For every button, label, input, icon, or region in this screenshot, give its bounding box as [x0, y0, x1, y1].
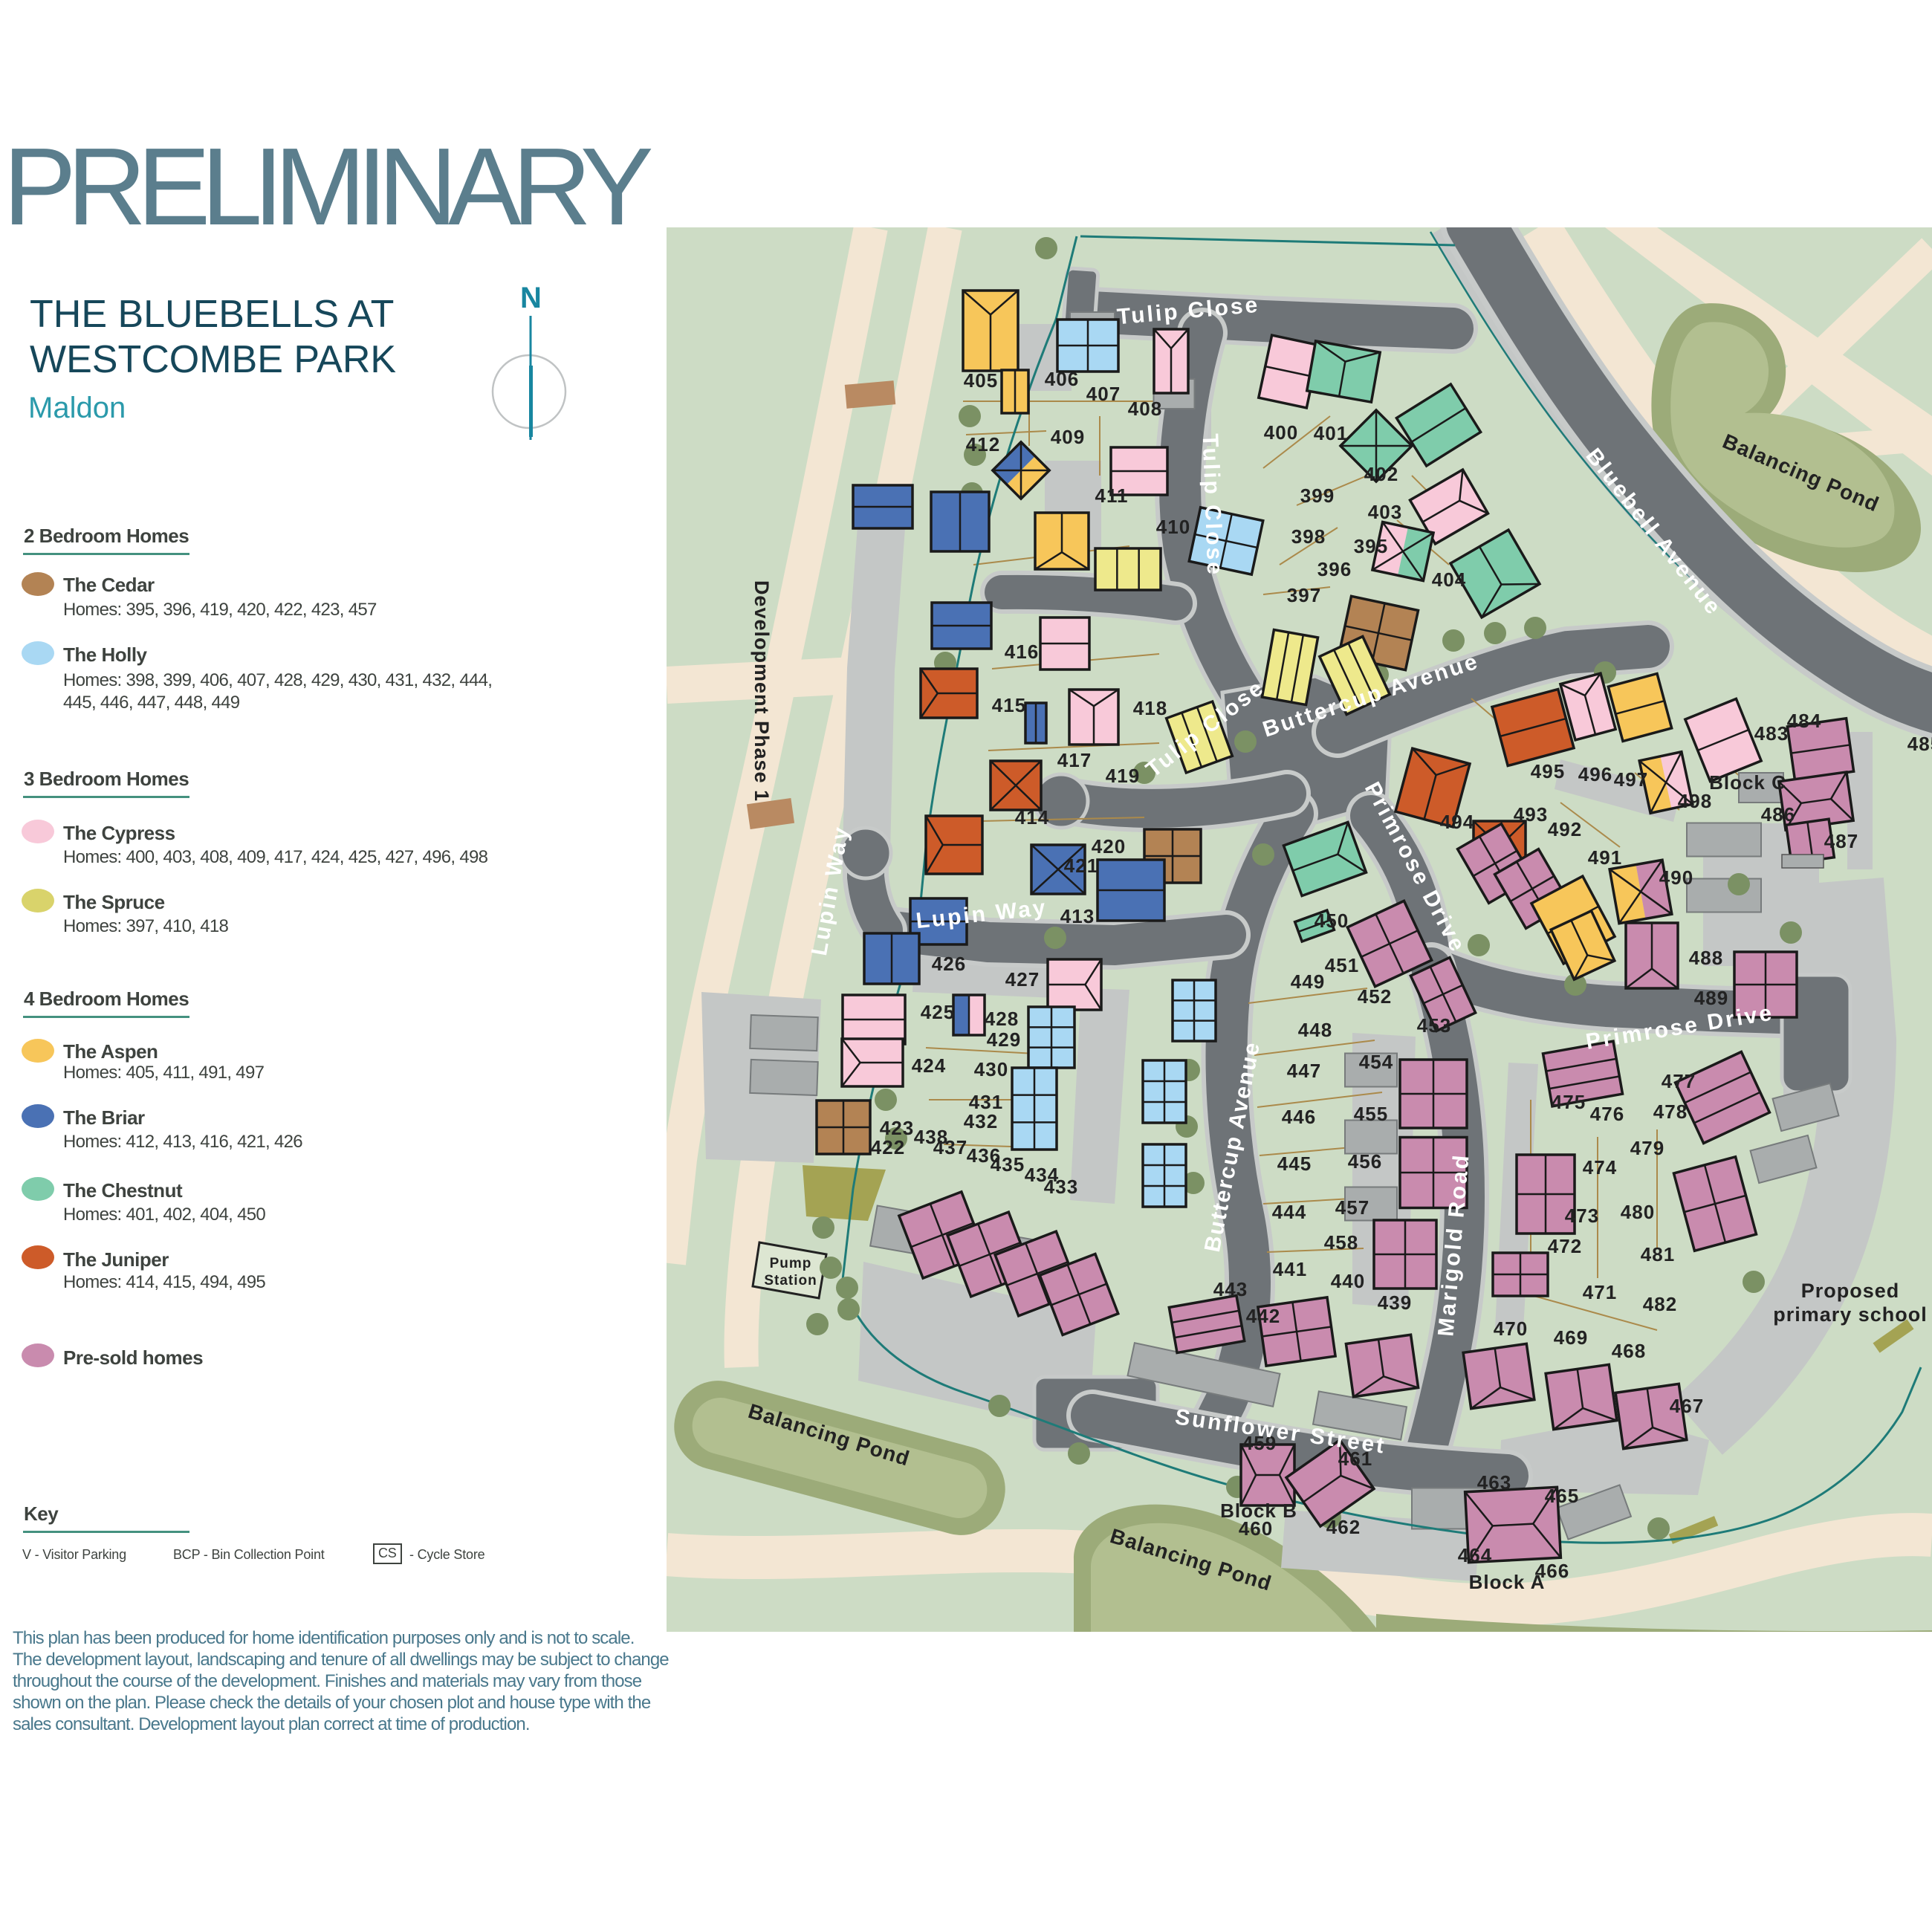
svg-text:410: 410	[1156, 516, 1190, 538]
svg-text:400: 400	[1264, 421, 1298, 444]
svg-text:417: 417	[1057, 749, 1092, 771]
svg-text:446: 446	[1282, 1106, 1316, 1128]
svg-text:396: 396	[1317, 558, 1352, 580]
svg-text:490: 490	[1659, 866, 1693, 889]
svg-text:462: 462	[1326, 1516, 1361, 1538]
svg-text:438: 438	[914, 1126, 948, 1148]
svg-text:484: 484	[1787, 710, 1821, 732]
svg-text:492: 492	[1548, 818, 1582, 840]
svg-text:428: 428	[985, 1008, 1019, 1030]
svg-text:426: 426	[932, 953, 966, 975]
svg-text:475: 475	[1552, 1091, 1586, 1113]
svg-text:467: 467	[1670, 1395, 1704, 1417]
svg-text:468: 468	[1612, 1340, 1646, 1362]
svg-text:483: 483	[1754, 722, 1789, 745]
svg-text:458: 458	[1324, 1231, 1358, 1254]
svg-text:463: 463	[1477, 1471, 1511, 1494]
svg-text:406: 406	[1045, 368, 1079, 390]
svg-text:496: 496	[1578, 763, 1612, 785]
svg-text:457: 457	[1335, 1196, 1369, 1219]
svg-text:479: 479	[1630, 1137, 1664, 1159]
svg-text:465: 465	[1545, 1485, 1579, 1507]
svg-text:469: 469	[1554, 1326, 1588, 1349]
svg-text:452: 452	[1358, 985, 1392, 1008]
svg-text:474: 474	[1583, 1156, 1617, 1179]
svg-text:464: 464	[1458, 1544, 1492, 1566]
svg-text:398: 398	[1291, 525, 1326, 548]
svg-text:443: 443	[1213, 1278, 1248, 1300]
svg-text:480: 480	[1621, 1201, 1655, 1223]
svg-text:477: 477	[1662, 1070, 1696, 1092]
svg-text:408: 408	[1128, 398, 1162, 420]
svg-text:395: 395	[1354, 535, 1388, 557]
svg-text:424: 424	[912, 1054, 946, 1077]
svg-text:472: 472	[1548, 1235, 1582, 1257]
svg-text:416: 416	[1005, 641, 1039, 663]
svg-text:primary school: primary school	[1773, 1303, 1928, 1326]
svg-text:427: 427	[1005, 968, 1040, 991]
svg-text:423: 423	[880, 1117, 914, 1139]
svg-text:Pump: Pump	[770, 1256, 812, 1271]
svg-text:448: 448	[1298, 1019, 1332, 1041]
svg-text:442: 442	[1246, 1305, 1280, 1327]
svg-text:430: 430	[974, 1058, 1008, 1080]
svg-text:436: 436	[967, 1144, 1001, 1167]
svg-text:429: 429	[987, 1028, 1021, 1051]
svg-text:478: 478	[1653, 1100, 1688, 1123]
svg-text:Block A: Block A	[1469, 1571, 1546, 1593]
svg-text:491: 491	[1588, 846, 1622, 869]
svg-text:407: 407	[1086, 383, 1121, 405]
svg-text:Development Phase 1: Development Phase 1	[751, 580, 773, 802]
svg-text:451: 451	[1325, 954, 1359, 976]
svg-text:405: 405	[964, 369, 998, 392]
svg-text:419: 419	[1106, 765, 1140, 787]
svg-text:411: 411	[1095, 484, 1129, 507]
svg-text:471: 471	[1583, 1281, 1617, 1303]
svg-text:397: 397	[1287, 584, 1321, 606]
svg-text:403: 403	[1368, 501, 1402, 523]
svg-text:444: 444	[1272, 1201, 1306, 1223]
svg-text:498: 498	[1678, 790, 1712, 812]
svg-text:414: 414	[1015, 806, 1049, 829]
svg-text:494: 494	[1440, 811, 1474, 833]
svg-text:447: 447	[1287, 1060, 1321, 1082]
svg-text:445: 445	[1277, 1153, 1312, 1175]
svg-text:434: 434	[1025, 1164, 1059, 1186]
svg-text:450: 450	[1315, 910, 1349, 932]
svg-text:Station: Station	[764, 1273, 817, 1288]
svg-text:412: 412	[966, 433, 1000, 456]
svg-text:460: 460	[1239, 1517, 1273, 1540]
svg-text:399: 399	[1300, 484, 1335, 507]
svg-text:409: 409	[1051, 426, 1085, 448]
svg-text:454: 454	[1359, 1051, 1393, 1073]
svg-text:415: 415	[992, 694, 1026, 716]
svg-text:Tulip Close: Tulip Close	[1198, 433, 1228, 577]
svg-text:418: 418	[1133, 697, 1167, 719]
svg-text:470: 470	[1494, 1317, 1528, 1340]
svg-text:489: 489	[1694, 987, 1728, 1009]
svg-text:449: 449	[1291, 970, 1325, 993]
svg-text:455: 455	[1354, 1103, 1388, 1125]
svg-text:432: 432	[964, 1110, 998, 1132]
svg-text:485: 485	[1907, 733, 1932, 755]
svg-text:440: 440	[1331, 1270, 1365, 1292]
svg-text:497: 497	[1614, 768, 1648, 791]
svg-text:441: 441	[1273, 1258, 1307, 1280]
svg-text:456: 456	[1348, 1150, 1382, 1173]
svg-text:482: 482	[1643, 1293, 1677, 1315]
svg-text:487: 487	[1824, 830, 1858, 852]
svg-text:425: 425	[921, 1001, 955, 1023]
svg-text:N: N	[520, 282, 542, 314]
svg-text:486: 486	[1761, 803, 1795, 826]
svg-text:421: 421	[1064, 855, 1098, 877]
svg-text:453: 453	[1417, 1014, 1451, 1037]
svg-text:439: 439	[1378, 1291, 1412, 1314]
svg-text:473: 473	[1565, 1205, 1599, 1227]
svg-text:488: 488	[1689, 947, 1723, 969]
svg-text:495: 495	[1531, 760, 1565, 782]
svg-text:401: 401	[1314, 422, 1348, 444]
svg-text:413: 413	[1060, 905, 1095, 927]
svg-text:Proposed: Proposed	[1801, 1280, 1900, 1302]
svg-text:481: 481	[1641, 1243, 1675, 1265]
svg-text:422: 422	[871, 1136, 905, 1158]
svg-text:493: 493	[1514, 803, 1548, 826]
svg-text:404: 404	[1432, 568, 1466, 591]
svg-text:476: 476	[1590, 1103, 1624, 1125]
svg-text:Block C: Block C	[1709, 771, 1786, 794]
svg-text:402: 402	[1364, 463, 1398, 485]
